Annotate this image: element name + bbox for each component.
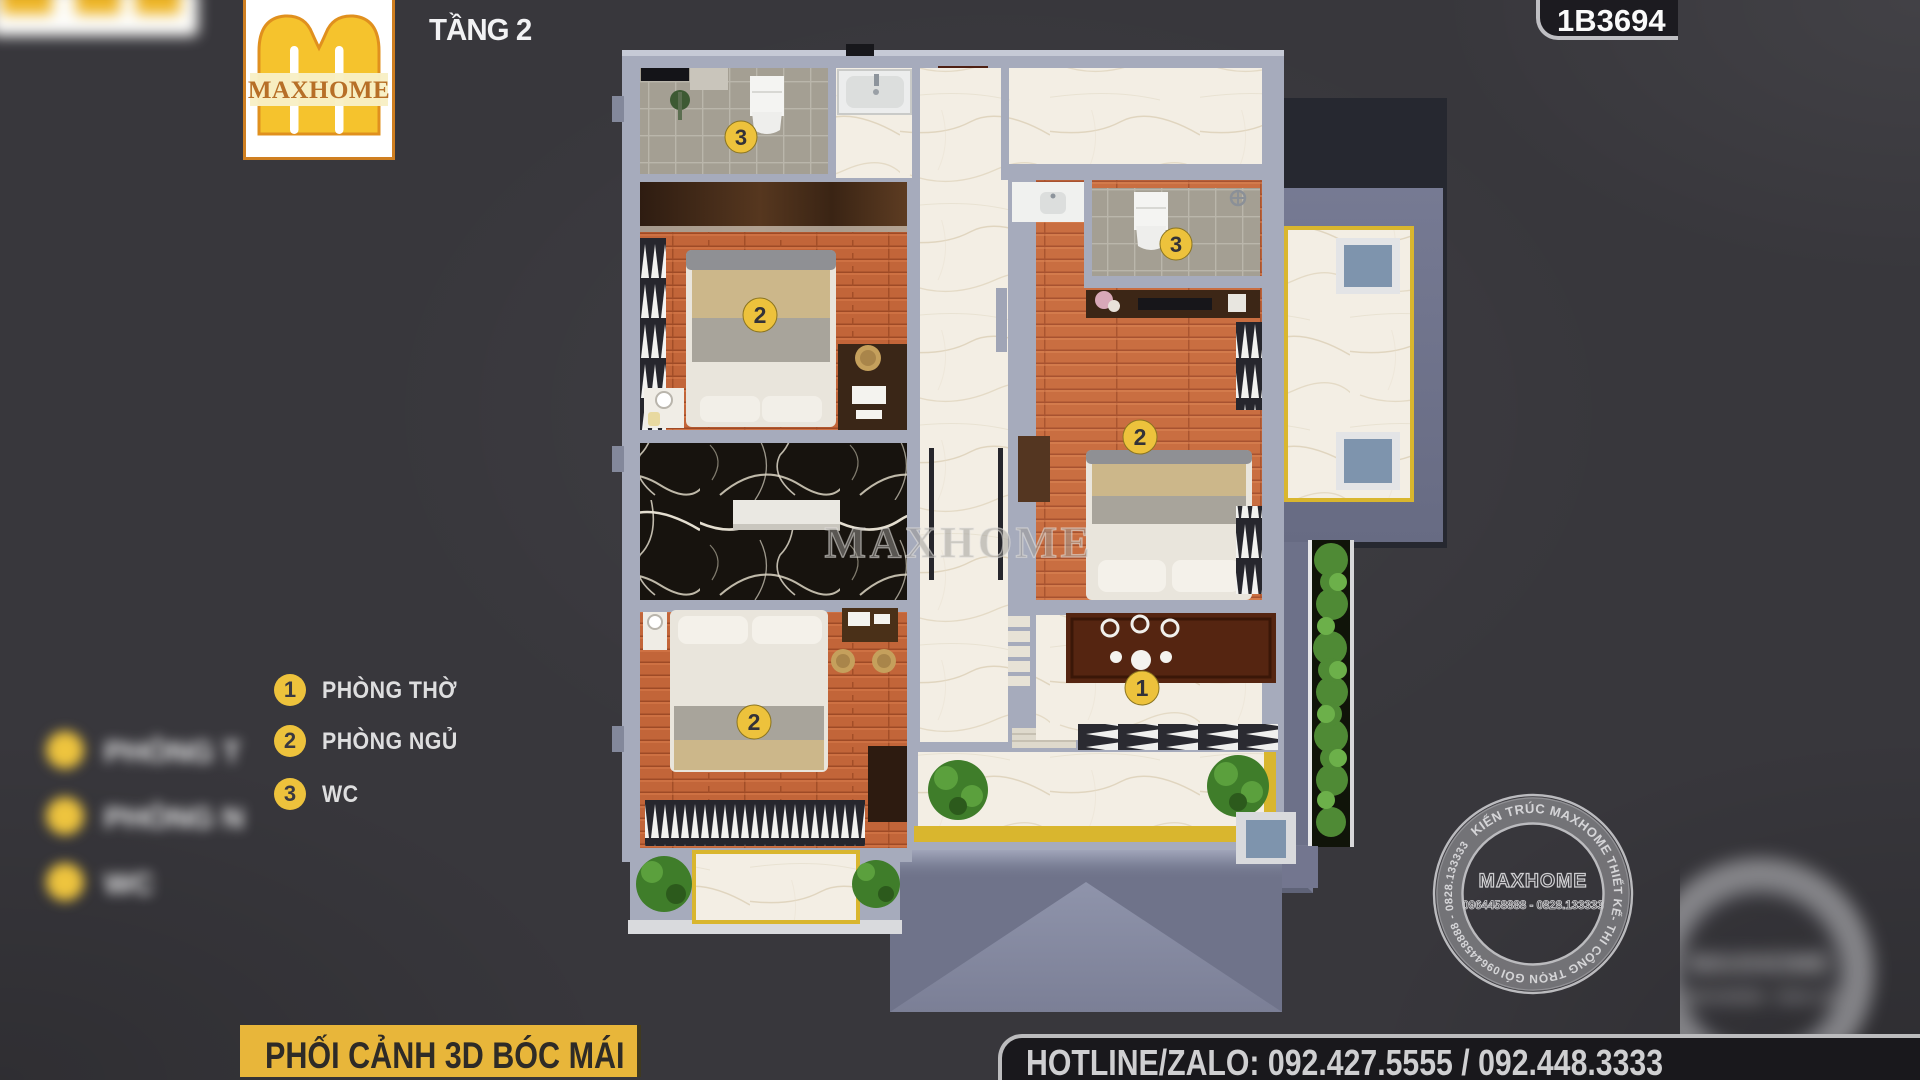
svg-text:3: 3 [1170, 232, 1182, 257]
svg-text:MAXHOME: MAXHOME [825, 518, 1094, 567]
svg-text:0964458888 - 0828.133: 0964458888 - 0828.133 [1683, 989, 1838, 1005]
svg-text:2: 2 [1134, 424, 1147, 450]
svg-text:2: 2 [748, 709, 761, 735]
svg-text:3: 3 [735, 125, 747, 150]
svg-text:0964458888 - 0828.133333: 0964458888 - 0828.133333 [1462, 900, 1603, 912]
svg-text:1: 1 [1136, 675, 1149, 701]
svg-text:MAXHOME: MAXHOME [1479, 870, 1588, 892]
svg-text:2: 2 [754, 302, 767, 328]
svg-text:MAXHOME: MAXHOME [1690, 948, 1830, 978]
